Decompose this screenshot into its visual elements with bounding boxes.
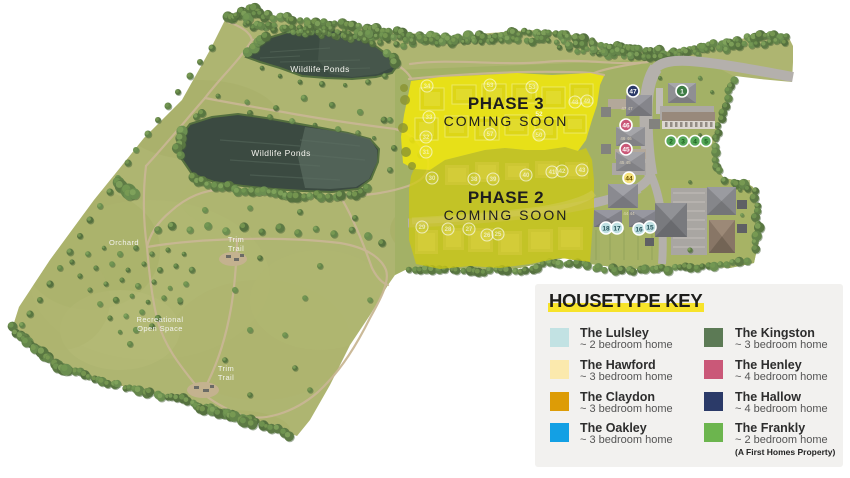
svg-text:45: 45 bbox=[622, 146, 630, 153]
svg-text:Trail: Trail bbox=[228, 244, 244, 253]
svg-text:53: 53 bbox=[487, 83, 494, 89]
svg-text:27: 27 bbox=[466, 227, 473, 233]
svg-text:45 45: 45 45 bbox=[619, 160, 631, 165]
svg-text:42: 42 bbox=[559, 169, 566, 175]
svg-text:49: 49 bbox=[584, 99, 591, 105]
svg-text:43: 43 bbox=[579, 168, 586, 174]
svg-text:COMING SOON: COMING SOON bbox=[444, 207, 569, 223]
svg-text:28: 28 bbox=[445, 227, 452, 233]
svg-text:41: 41 bbox=[549, 170, 556, 176]
svg-text:17: 17 bbox=[613, 225, 621, 232]
svg-text:15: 15 bbox=[646, 224, 654, 231]
svg-text:18: 18 bbox=[602, 225, 610, 232]
svg-text:26: 26 bbox=[484, 233, 491, 239]
svg-text:39: 39 bbox=[490, 177, 497, 183]
svg-text:2: 2 bbox=[669, 138, 673, 145]
svg-text:PHASE 3: PHASE 3 bbox=[468, 94, 544, 113]
svg-text:Wildlife Ponds: Wildlife Ponds bbox=[290, 64, 349, 74]
svg-text:34: 34 bbox=[424, 84, 431, 90]
svg-text:Trim: Trim bbox=[228, 235, 244, 244]
svg-text:COMING SOON: COMING SOON bbox=[444, 113, 569, 129]
svg-text:3: 3 bbox=[681, 138, 685, 145]
svg-text:PHASE 2: PHASE 2 bbox=[468, 188, 544, 207]
svg-text:53: 53 bbox=[529, 85, 536, 91]
svg-text:25: 25 bbox=[495, 232, 502, 238]
svg-text:4: 4 bbox=[693, 138, 697, 145]
svg-text:5: 5 bbox=[704, 138, 708, 145]
svg-text:1: 1 bbox=[680, 88, 684, 95]
svg-text:Wildlife Ponds: Wildlife Ponds bbox=[251, 148, 310, 158]
svg-text:57: 57 bbox=[487, 132, 494, 138]
svg-text:44: 44 bbox=[625, 175, 633, 182]
svg-text:31: 31 bbox=[423, 150, 430, 156]
svg-text:38: 38 bbox=[471, 177, 478, 183]
svg-text:29: 29 bbox=[419, 225, 426, 231]
svg-text:44 44: 44 44 bbox=[623, 211, 635, 216]
svg-text:47: 47 bbox=[629, 88, 637, 95]
svg-text:Trim: Trim bbox=[218, 364, 234, 373]
svg-text:16: 16 bbox=[635, 226, 643, 233]
svg-text:47 47: 47 47 bbox=[621, 106, 633, 111]
svg-text:48: 48 bbox=[572, 100, 579, 106]
svg-text:40: 40 bbox=[523, 173, 530, 179]
svg-text:Recreational: Recreational bbox=[137, 315, 184, 324]
svg-text:46 46: 46 46 bbox=[620, 136, 632, 141]
svg-text:Trail: Trail bbox=[218, 373, 234, 382]
svg-text:30: 30 bbox=[429, 176, 436, 182]
svg-text:32: 32 bbox=[423, 135, 430, 141]
svg-text:Open Space: Open Space bbox=[137, 324, 183, 333]
svg-text:46: 46 bbox=[622, 122, 630, 129]
svg-text:33: 33 bbox=[426, 115, 433, 121]
svg-text:50: 50 bbox=[536, 133, 543, 139]
svg-text:Orchard: Orchard bbox=[109, 238, 139, 247]
